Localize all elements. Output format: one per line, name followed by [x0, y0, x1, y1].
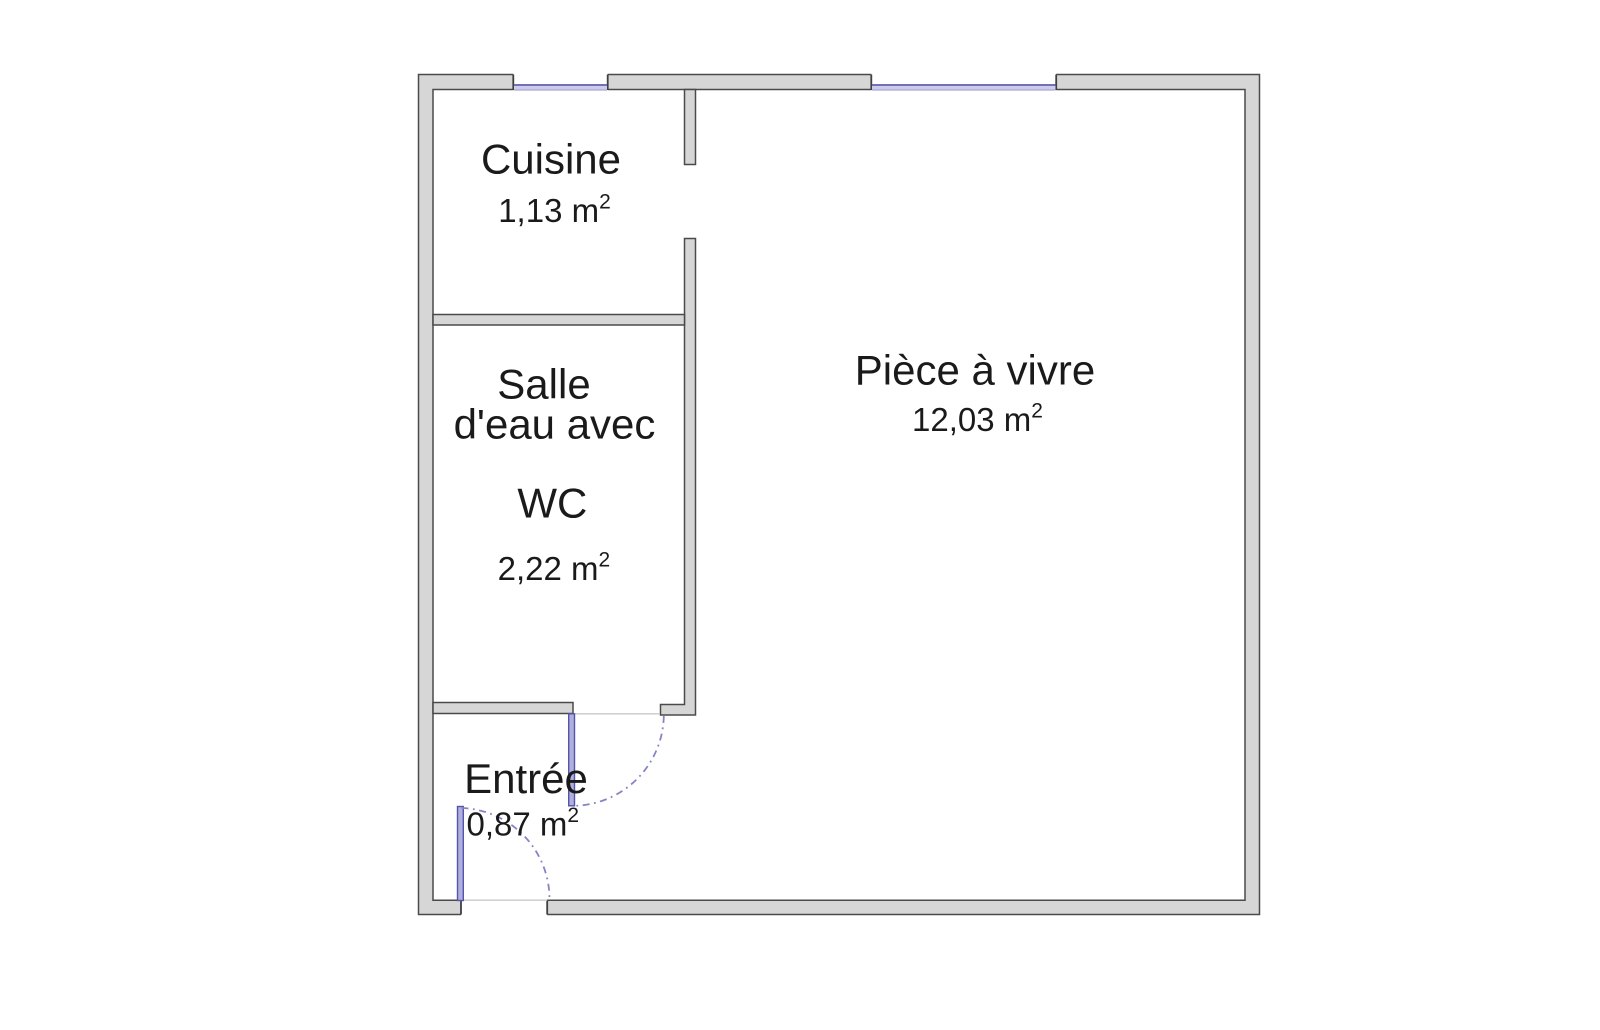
- svg-text:2,22 m2: 2,22 m2: [498, 549, 611, 588]
- svg-text:WC: WC: [517, 480, 587, 527]
- svg-text:Cuisine: Cuisine: [481, 135, 621, 182]
- svg-text:1,13 m2: 1,13 m2: [498, 190, 611, 229]
- svg-text:12,03 m2: 12,03 m2: [912, 400, 1043, 439]
- svg-text:Entrée: Entrée: [464, 755, 588, 802]
- svg-text:0,87 m2: 0,87 m2: [467, 804, 580, 843]
- svg-text:d'eau avec: d'eau avec: [454, 401, 656, 448]
- svg-text:Pièce à vivre: Pièce à vivre: [855, 346, 1095, 393]
